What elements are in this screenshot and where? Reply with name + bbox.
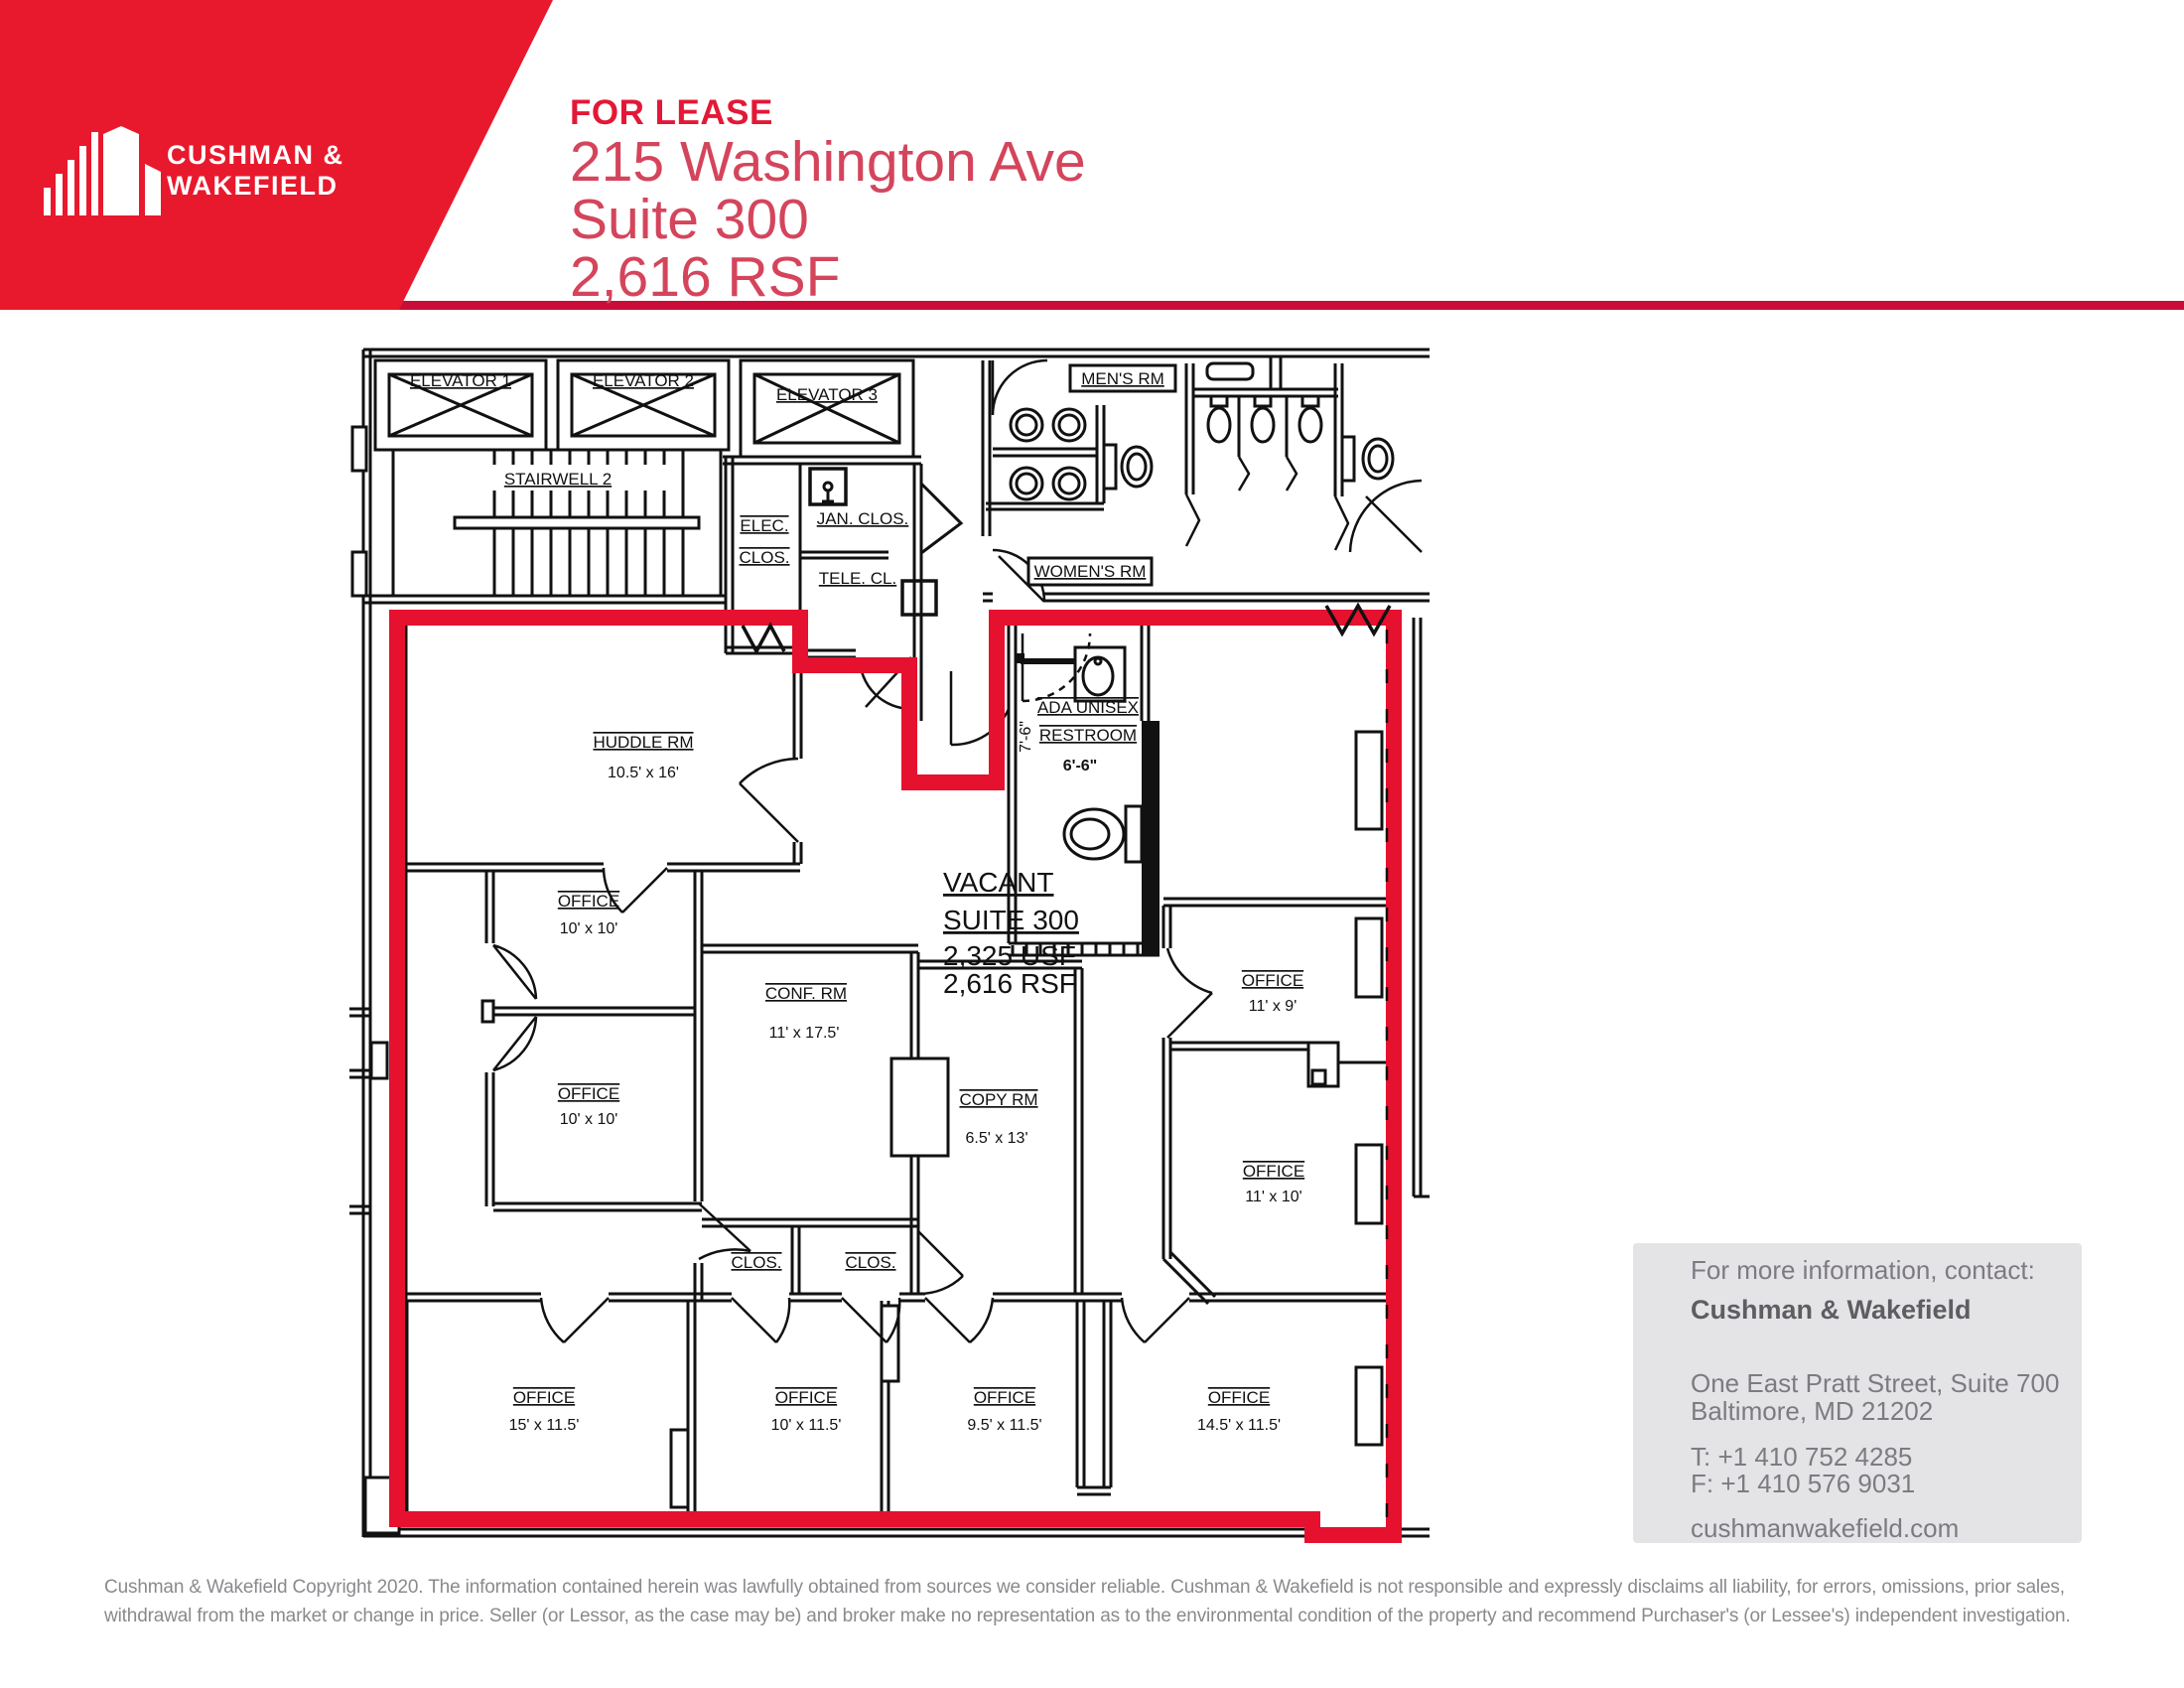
label-rsf: 2,616 RSF — [943, 968, 1076, 999]
label-jan-closet: JAN. CLOS. — [817, 509, 909, 528]
label-ada-2: RESTROOM — [1039, 726, 1137, 745]
label-tele-closet: TELE. CL. — [819, 569, 896, 588]
label-conf-room: CONF. RM — [765, 984, 847, 1003]
label-office-15: OFFICE — [513, 1388, 575, 1407]
for-lease-tag: FOR LEASE — [570, 93, 1086, 133]
label-copy-room: COPY RM — [959, 1090, 1037, 1109]
contact-website-link[interactable]: cushmanwakefield.com — [1691, 1513, 1959, 1544]
label-ada-height: 7'-6" — [1018, 721, 1034, 753]
label-elevator-2: ELEVATOR 2 — [593, 371, 694, 390]
header-block: FOR LEASE 215 Washington Ave Suite 300 2… — [570, 93, 1086, 306]
label-stairwell-2: STAIRWELL 2 — [504, 470, 612, 489]
suite-walls — [400, 626, 1394, 1521]
label-office-10-dim: 10' x 11.5' — [771, 1417, 842, 1434]
logo-text-line1: CUSHMAN & — [167, 140, 344, 171]
label-office2-dim: 10' x 10' — [560, 1111, 618, 1128]
core-walls — [363, 457, 961, 721]
contact-intro: For more information, contact: — [1691, 1255, 2035, 1286]
label-ada-width: 6'-6" — [1063, 758, 1098, 774]
disclaimer-line1: Cushman & Wakefield Copyright 2020. The … — [104, 1573, 2129, 1602]
contact-address-line1: One East Pratt Street, Suite 700 — [1691, 1368, 2059, 1399]
label-elec-closet-2: CLOS. — [739, 548, 789, 567]
contact-address-line2: Baltimore, MD 21202 — [1691, 1396, 1933, 1427]
label-suite-300: SUITE 300 — [943, 905, 1079, 935]
label-usf: 2,325 USF — [943, 940, 1076, 971]
legal-disclaimer: Cushman & Wakefield Copyright 2020. The … — [104, 1573, 2129, 1630]
label-womens-room: WOMEN'S RM — [1034, 562, 1147, 581]
logo-text-line2: WAKEFIELD — [167, 171, 339, 202]
cushman-wakefield-logo: CUSHMAN & WAKEFIELD — [44, 124, 391, 218]
label-office-95-dim: 9.5' x 11.5' — [967, 1417, 1041, 1434]
contact-fax: F: +1 410 576 9031 — [1691, 1469, 1915, 1499]
label-huddle-room: HUDDLE RM — [593, 733, 693, 752]
property-size: 2,616 RSF — [570, 248, 1086, 306]
label-office1: OFFICE — [558, 892, 619, 911]
label-office-95: OFFICE — [974, 1388, 1035, 1407]
disclaimer-line2: withdrawal from the market or change in … — [104, 1602, 2129, 1630]
label-elec-closet-1: ELEC. — [740, 516, 788, 535]
label-office-11x9: OFFICE — [1242, 971, 1303, 990]
label-office2: OFFICE — [558, 1084, 619, 1103]
property-address: 215 Washington Ave — [570, 133, 1086, 191]
label-office-145-dim: 14.5' x 11.5' — [1197, 1417, 1281, 1434]
label-office-10: OFFICE — [775, 1388, 837, 1407]
contact-card: For more information, contact: Cushman &… — [1633, 1243, 2082, 1543]
label-office-11x10: OFFICE — [1243, 1162, 1304, 1181]
label-closet-2: CLOS. — [845, 1253, 895, 1272]
label-office1-dim: 10' x 10' — [560, 920, 618, 937]
property-suite: Suite 300 — [570, 191, 1086, 248]
label-conf-dim: 11' x 17.5' — [769, 1025, 840, 1042]
label-office-11x10-dim: 11' x 10' — [1245, 1189, 1301, 1205]
label-copy-dim: 6.5' x 13' — [965, 1130, 1027, 1147]
label-office-145: OFFICE — [1208, 1388, 1270, 1407]
label-office-15-dim: 15' x 11.5' — [509, 1417, 580, 1434]
label-office-11x9-dim: 11' x 9' — [1249, 998, 1297, 1015]
label-mens-room: MEN'S RM — [1081, 369, 1164, 388]
contact-company: Cushman & Wakefield — [1691, 1295, 1972, 1326]
label-huddle-dim: 10.5' x 16' — [608, 765, 679, 781]
label-vacant: VACANT — [943, 867, 1054, 898]
label-ada-1: ADA UNISEX — [1037, 698, 1139, 717]
label-closet-1: CLOS. — [731, 1253, 781, 1272]
label-elevator-3: ELEVATOR 3 — [776, 385, 878, 404]
label-elevator-1: ELEVATOR 1 — [410, 371, 511, 390]
